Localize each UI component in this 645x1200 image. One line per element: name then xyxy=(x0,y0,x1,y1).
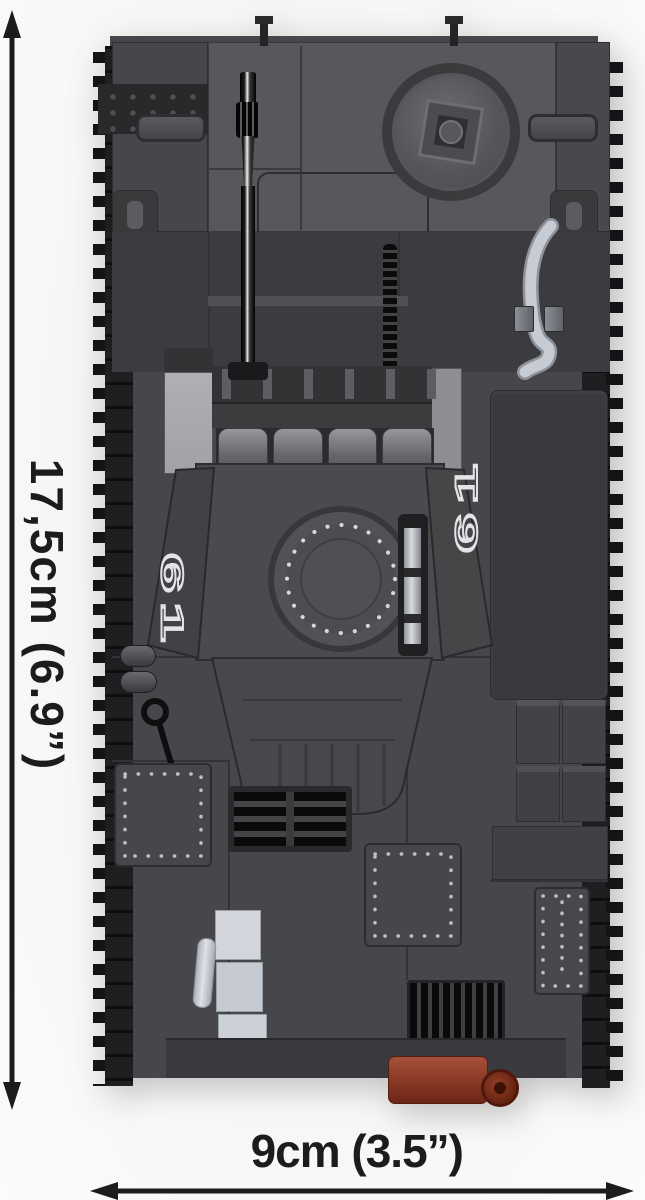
mantlet-hinge-clip xyxy=(386,369,436,399)
exhaust-shroud-brick xyxy=(216,962,263,1012)
hull-brick xyxy=(492,826,608,880)
engine-grille-rear xyxy=(407,980,505,1044)
handle-bar xyxy=(404,528,421,644)
engine-fan-hatch xyxy=(382,63,520,201)
hatch-handle xyxy=(398,514,428,656)
exhaust-pipe xyxy=(388,1056,488,1104)
holder-pin xyxy=(127,201,143,229)
tow-post-right xyxy=(444,16,464,46)
fender-slot-right xyxy=(528,114,598,142)
gun-barrel-tube xyxy=(241,186,255,372)
panel-seam xyxy=(208,168,302,170)
handle-notch xyxy=(404,614,421,623)
tow-post-left xyxy=(254,16,274,46)
mantlet-bar xyxy=(212,402,432,428)
rivet-plate-left xyxy=(113,762,213,868)
hull-brick xyxy=(562,766,606,822)
gun-muzzle-brake xyxy=(236,102,260,138)
gun-barrel-muzzle xyxy=(240,72,256,104)
hull-brick xyxy=(516,700,560,764)
rivet-plate-right xyxy=(533,886,591,996)
fan-center-tile xyxy=(418,99,484,165)
panel-seam xyxy=(398,232,400,302)
equipment-box xyxy=(490,390,608,700)
tool-clip xyxy=(514,306,534,332)
panel-seam xyxy=(490,880,608,882)
width-dimension-arrow xyxy=(88,1178,636,1200)
tool-clip xyxy=(544,306,564,332)
exhaust-end-cap xyxy=(481,1069,519,1107)
hull-brick xyxy=(516,766,560,822)
radio-antenna xyxy=(383,244,397,384)
rivet-plate-center xyxy=(363,842,463,948)
grille-divider xyxy=(286,792,294,846)
tank-model: 61 61 xyxy=(0,0,645,1200)
commander-hatch xyxy=(266,504,416,654)
width-dimension-label: 9cm (3.5”) xyxy=(93,1124,463,1178)
handle-notch xyxy=(404,568,421,577)
fender-slot-left xyxy=(136,114,206,142)
product-photo-tank-top-view: 17,5cm (6.9”) xyxy=(0,0,645,1200)
engine-grille-front xyxy=(228,786,352,852)
exhaust-cap-hole xyxy=(494,1082,506,1094)
track-tool-clip xyxy=(120,645,156,667)
hull-brick xyxy=(562,700,606,764)
gun-barrel-base xyxy=(228,362,268,380)
exhaust-shroud-brick xyxy=(215,910,261,960)
crowbar-tool xyxy=(505,218,585,386)
mantlet-hinge-clip xyxy=(304,369,354,399)
hull-step-ledge xyxy=(208,296,408,306)
side-panel-cap xyxy=(164,348,213,374)
